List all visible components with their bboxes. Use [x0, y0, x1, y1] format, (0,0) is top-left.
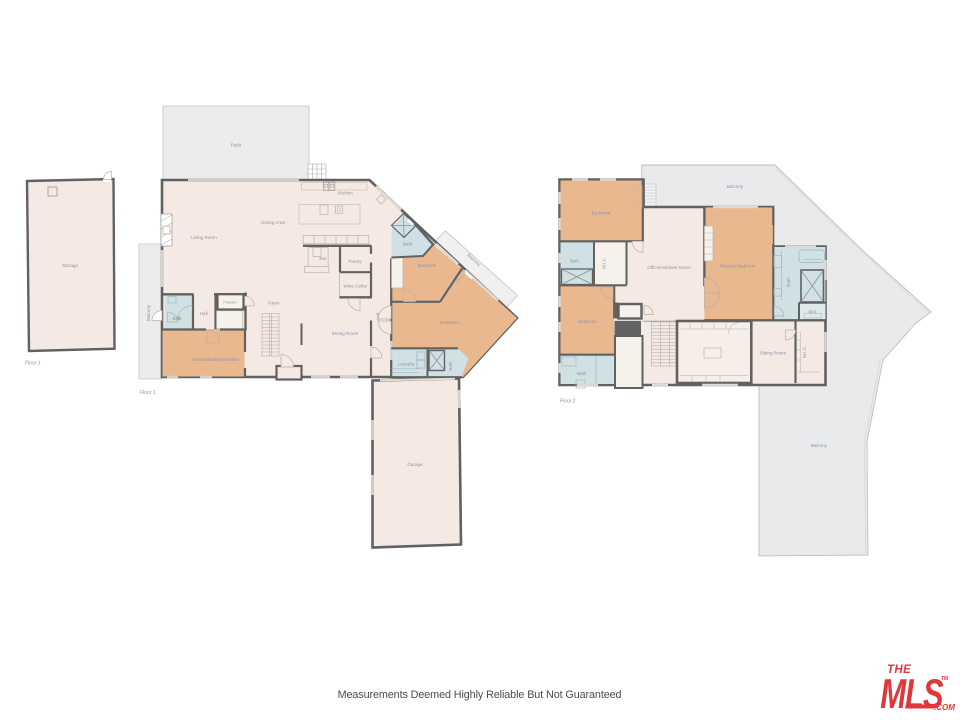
svg-text:Office/Hobbies Room: Office/Hobbies Room [647, 265, 691, 270]
svg-text:TM: TM [941, 676, 948, 682]
svg-text:Bath: Bath [570, 259, 580, 264]
svg-text:Bath: Bath [577, 371, 587, 376]
svg-text:Bath: Bath [448, 361, 453, 371]
svg-text:Bedroom: Bedroom [418, 263, 437, 268]
svg-text:Bedroom: Bedroom [440, 320, 459, 325]
svg-text:.COM: .COM [934, 703, 955, 712]
svg-text:Bedroom: Bedroom [592, 211, 611, 216]
svg-text:Floor 1: Floor 1 [140, 390, 156, 396]
svg-text:Patio: Patio [231, 143, 242, 148]
svg-text:Powder: Powder [223, 300, 237, 305]
svg-text:Kitchen: Kitchen [337, 191, 353, 196]
svg-text:Balcony: Balcony [811, 443, 828, 448]
svg-text:Wine Cellar: Wine Cellar [343, 283, 367, 288]
svg-text:Bath: Bath [172, 316, 182, 321]
svg-text:W.I.C.: W.I.C. [602, 257, 607, 270]
svg-text:Storage: Storage [62, 263, 79, 268]
svg-text:W.I.C.: W.I.C. [802, 346, 807, 359]
svg-text:Sitting Room: Sitting Room [760, 351, 786, 356]
svg-text:Garage: Garage [407, 462, 423, 467]
svg-text:Floor 1: Floor 1 [25, 361, 41, 367]
svg-text:Theater/Bedroom/Other: Theater/Bedroom/Other [191, 357, 240, 362]
svg-text:Balcony: Balcony [727, 184, 744, 189]
svg-text:Measurements Deemed Highly Rel: Measurements Deemed Highly Reliable But … [338, 689, 622, 701]
svg-text:Bath: Bath [786, 277, 791, 287]
svg-text:Pantry: Pantry [348, 259, 362, 264]
svg-text:Dining Room: Dining Room [332, 331, 359, 336]
svg-text:Living Room: Living Room [191, 235, 217, 240]
svg-text:Primary Bedroom: Primary Bedroom [720, 264, 756, 269]
svg-text:Bath: Bath [403, 242, 413, 247]
svg-text:Balcony: Balcony [146, 304, 151, 321]
svg-text:Dining Area: Dining Area [261, 220, 285, 225]
svg-text:Bedroom: Bedroom [578, 319, 597, 324]
svg-text:Laundry: Laundry [398, 362, 415, 367]
svg-text:Floor 2: Floor 2 [560, 399, 576, 405]
svg-text:Hall: Hall [200, 311, 208, 316]
svg-text:Foyer: Foyer [268, 301, 280, 306]
